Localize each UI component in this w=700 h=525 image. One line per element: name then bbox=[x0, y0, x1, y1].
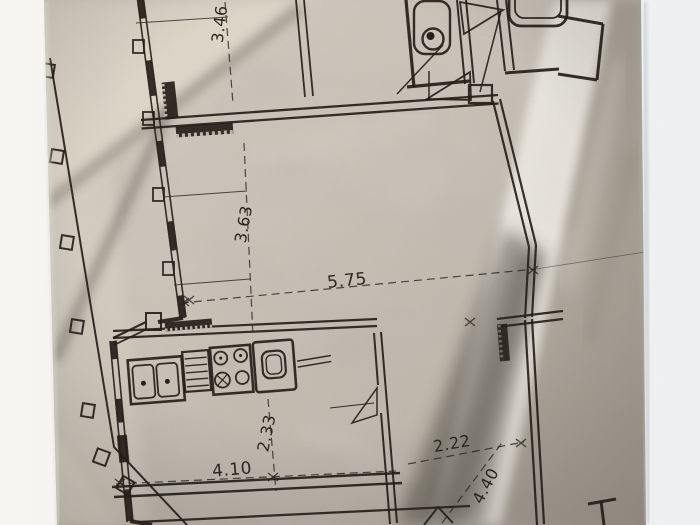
floor-plan-drawing: 3.46 3.63 5.75 2.33 4.10 2.22 4.40 bbox=[0, 0, 700, 525]
fold-overlays bbox=[40, 0, 652, 525]
paper-grain bbox=[40, 0, 652, 525]
photo-of-floor-plan: 3.46 3.63 5.75 2.33 4.10 2.22 4.40 bbox=[0, 0, 700, 525]
